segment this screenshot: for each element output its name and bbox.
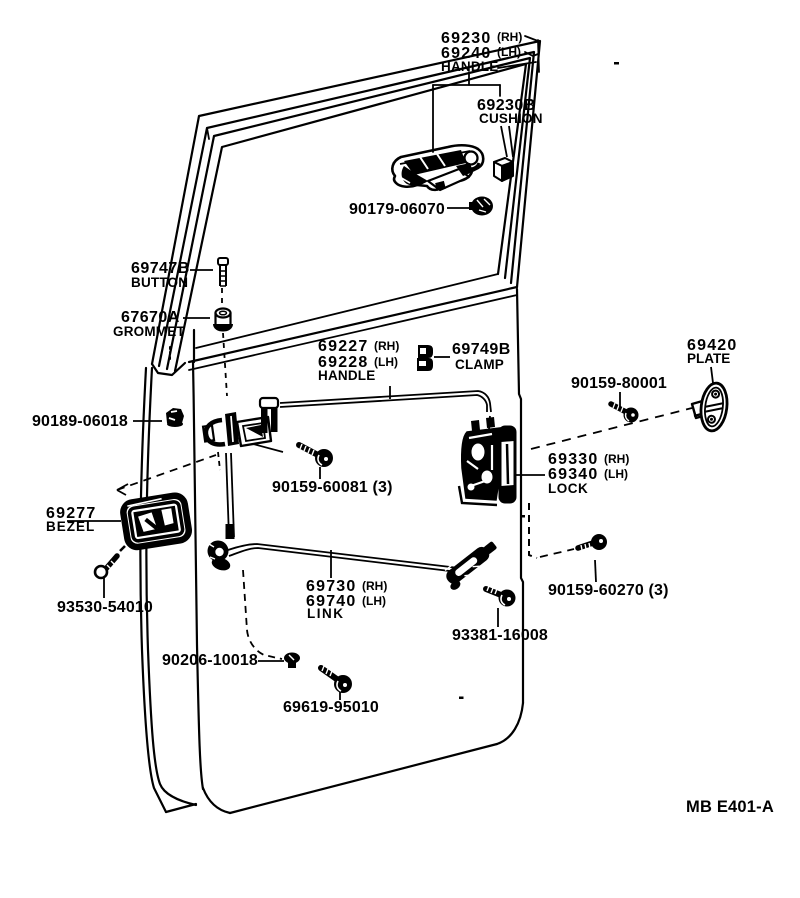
svg-text:HANDLE: HANDLE bbox=[318, 368, 375, 383]
svg-text:BUTTON: BUTTON bbox=[131, 275, 188, 290]
svg-text:CUSHION: CUSHION bbox=[479, 111, 543, 126]
svg-text:MB E401-A: MB E401-A bbox=[686, 798, 774, 816]
svg-text:CLAMP: CLAMP bbox=[455, 357, 504, 372]
svg-text:90159-60081 (3): 90159-60081 (3) bbox=[272, 479, 393, 496]
svg-text:90189-06018: 90189-06018 bbox=[32, 413, 128, 430]
svg-text:90159-80001: 90159-80001 bbox=[571, 375, 667, 392]
svg-text:93381-16008: 93381-16008 bbox=[452, 627, 548, 644]
svg-text:(RH): (RH) bbox=[604, 452, 629, 466]
svg-text:(RH): (RH) bbox=[362, 579, 387, 593]
svg-text:(LH): (LH) bbox=[497, 45, 521, 59]
svg-text:(LH): (LH) bbox=[374, 355, 398, 369]
svg-text:LINK: LINK bbox=[307, 606, 345, 621]
svg-text:(LH): (LH) bbox=[604, 467, 628, 481]
svg-text:LOCK: LOCK bbox=[548, 481, 588, 496]
svg-text:(RH): (RH) bbox=[374, 339, 399, 353]
svg-text:90159-60270 (3): 90159-60270 (3) bbox=[548, 582, 669, 599]
svg-text:GROMMET: GROMMET bbox=[113, 324, 185, 339]
svg-text:(RH): (RH) bbox=[497, 30, 522, 44]
svg-text:69749B: 69749B bbox=[452, 341, 511, 358]
svg-text:90206-10018: 90206-10018 bbox=[162, 652, 258, 669]
svg-text:(LH): (LH) bbox=[362, 594, 386, 608]
svg-text:69619-95010: 69619-95010 bbox=[283, 699, 379, 716]
svg-text:PLATE: PLATE bbox=[687, 351, 730, 366]
svg-text:69227: 69227 bbox=[318, 338, 369, 355]
svg-text:93530-54010: 93530-54010 bbox=[57, 599, 153, 616]
svg-text:90179-06070: 90179-06070 bbox=[349, 201, 445, 218]
